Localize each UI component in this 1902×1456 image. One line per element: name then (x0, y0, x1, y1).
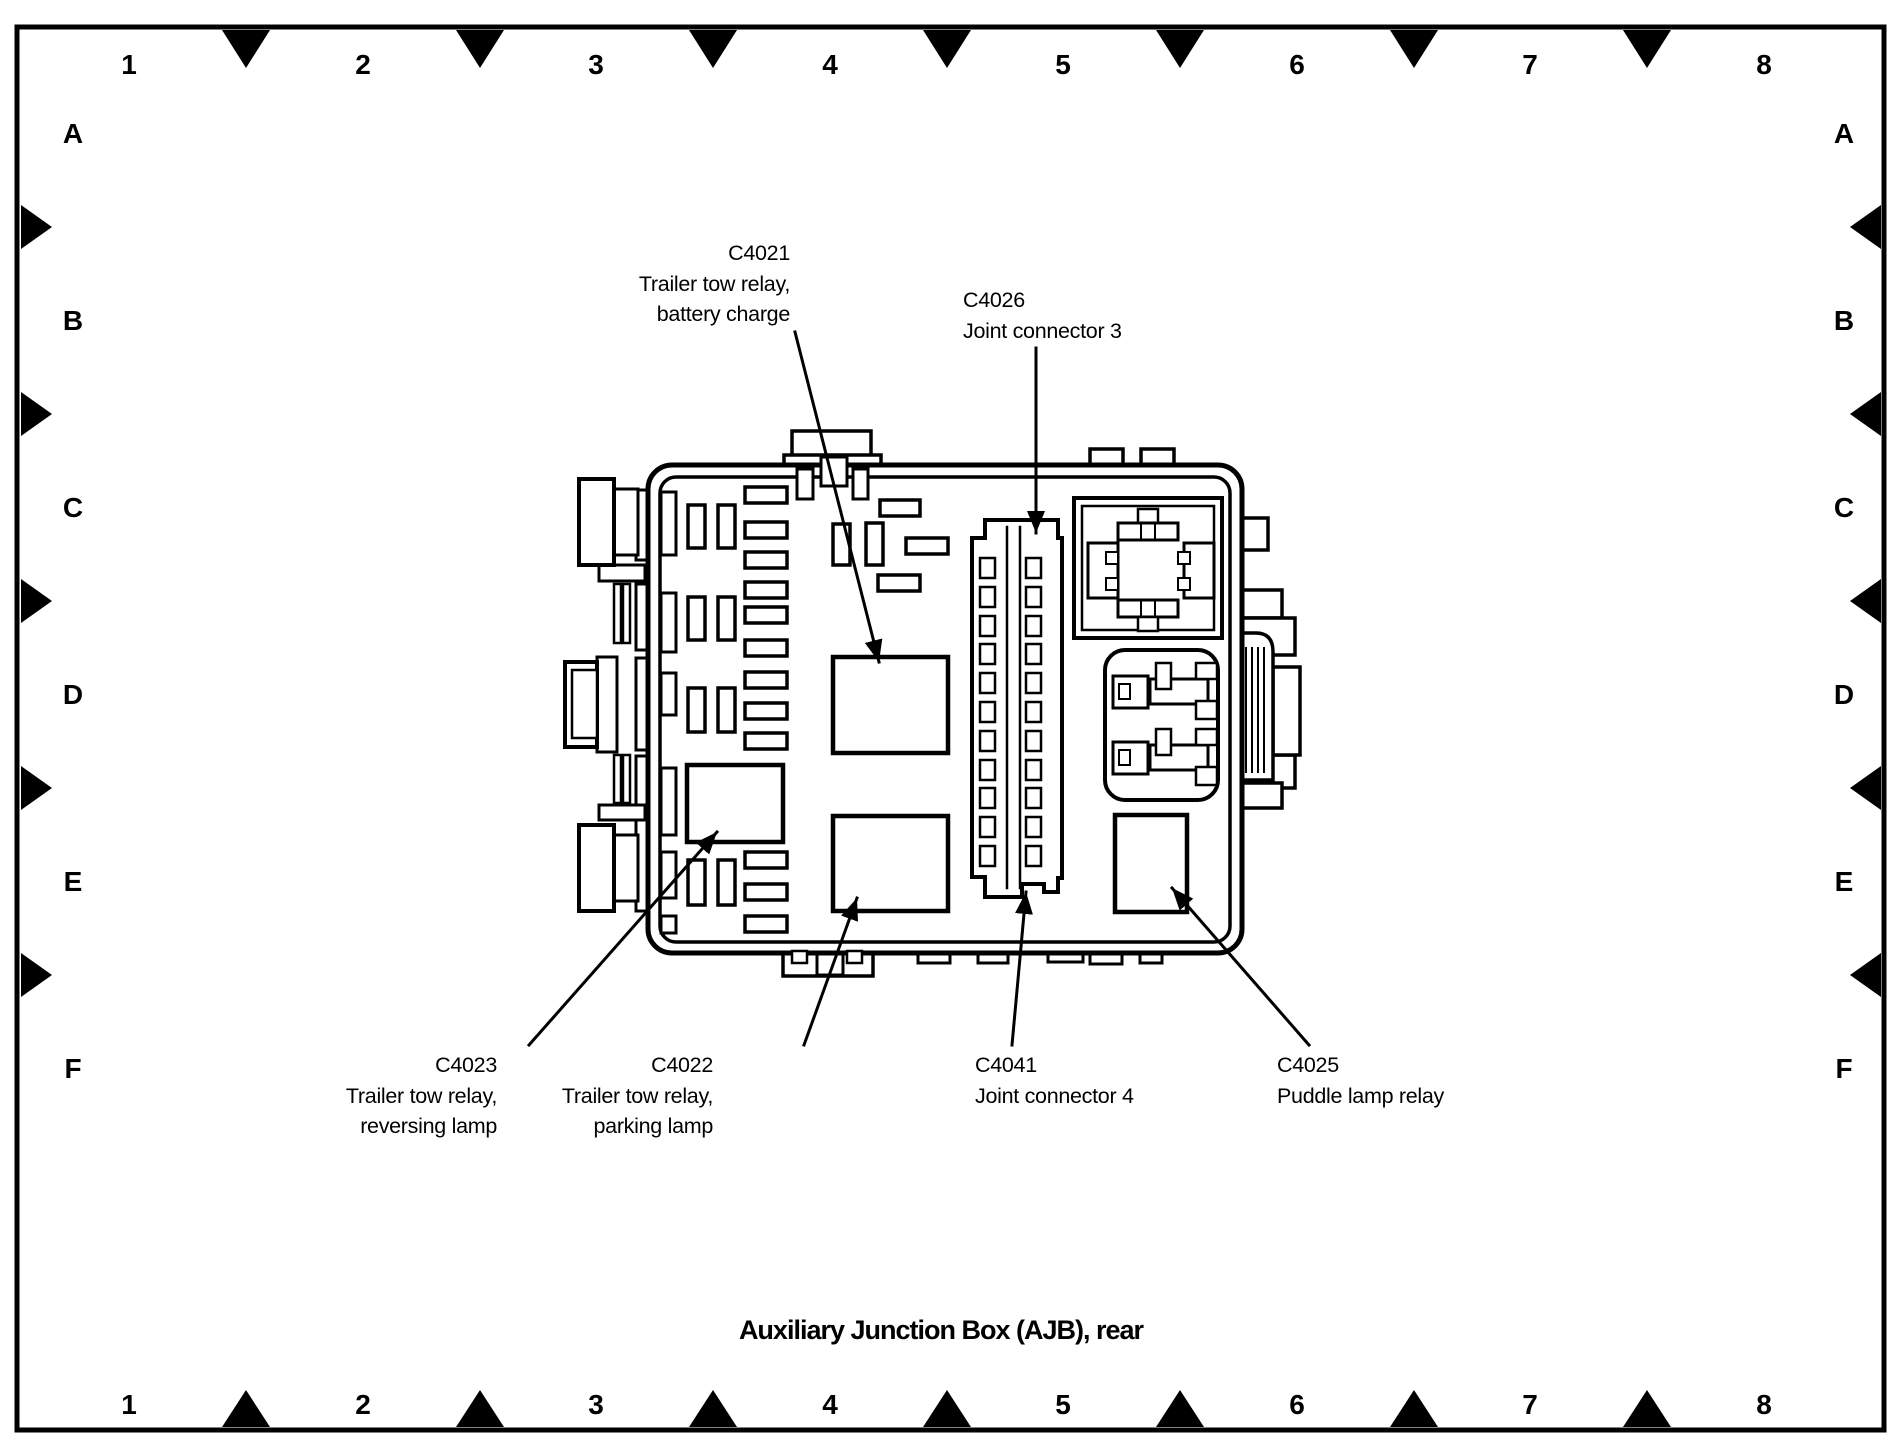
grid-col-label: 3 (566, 48, 626, 82)
grid-row-label: C (43, 491, 103, 525)
connector-id: C4041 (975, 1050, 1134, 1081)
top-triangle (1390, 30, 1438, 68)
connector-desc: Puddle lamp relay (1277, 1081, 1444, 1112)
top-triangle (456, 30, 504, 68)
grid-row-label: D (43, 678, 103, 712)
grid-row-label: B (1814, 304, 1874, 338)
grid-col-label: 8 (1734, 48, 1794, 82)
connector-desc: Joint connector 3 (963, 316, 1122, 347)
left-side-connectors (565, 479, 650, 911)
grid-row-label: B (43, 304, 103, 338)
horizontal-fuse-bank (745, 487, 787, 932)
connector-desc: Trailer tow relay, (639, 269, 790, 300)
grid-row-label: E (1814, 865, 1874, 899)
callout-c4025: C4025 Puddle lamp relay (1277, 1050, 1444, 1111)
grid-col-label: 8 (1734, 1388, 1794, 1422)
connector-desc: Trailer tow relay, (562, 1081, 713, 1112)
c4021-trailer-tow-relay-battery-charge (833, 657, 948, 753)
grid-col-label: 6 (1267, 1388, 1327, 1422)
left-triangle (21, 579, 52, 623)
manual-page: 1 2 3 4 5 6 7 8 1 2 3 4 5 6 7 8 A B C D … (0, 0, 1902, 1456)
left-triangle (21, 205, 52, 249)
bottom-triangle (456, 1390, 504, 1427)
connector-id: C4025 (1277, 1050, 1444, 1081)
right-triangle (1850, 953, 1881, 997)
left-triangle (21, 392, 52, 436)
grid-col-label: 4 (800, 1388, 860, 1422)
right-side-connectors (1238, 518, 1300, 808)
right-triangle (1850, 579, 1881, 623)
grid-col-label: 7 (1500, 1388, 1560, 1422)
grid-col-label: 1 (99, 48, 159, 82)
relay-module-upper (1074, 498, 1222, 638)
callout-c4021: C4021 Trailer tow relay, battery charge (639, 238, 790, 330)
connector-id: C4026 (963, 285, 1122, 316)
top-triangle (689, 30, 737, 68)
grid-row-label: F (43, 1052, 103, 1086)
wiring-diagram (0, 0, 1902, 1456)
callout-c4026: C4026 Joint connector 3 (963, 285, 1122, 346)
top-triangle (222, 30, 270, 68)
c4022-trailer-tow-relay-parking-lamp (833, 816, 948, 911)
grid-row-label: C (1814, 491, 1874, 525)
grid-row-label: A (43, 117, 103, 151)
c4023-trailer-tow-relay-reversing-lamp (687, 765, 783, 842)
top-triangle (1623, 30, 1671, 68)
grid-row-label: A (1814, 117, 1874, 151)
connector-desc: Joint connector 4 (975, 1081, 1134, 1112)
c4025-puddle-lamp-relay (1115, 815, 1187, 912)
connector-id: C4021 (639, 238, 790, 269)
right-triangle (1850, 392, 1881, 436)
grid-col-label: 5 (1033, 48, 1093, 82)
grid-col-label: 7 (1500, 48, 1560, 82)
callout-c4023: C4023 Trailer tow relay, reversing lamp (346, 1050, 497, 1142)
connector-desc: reversing lamp (346, 1111, 497, 1142)
grid-col-label: 2 (333, 48, 393, 82)
top-triangle (923, 30, 971, 68)
grid-row-label: F (1814, 1052, 1874, 1086)
connector-id: C4023 (346, 1050, 497, 1081)
grid-col-label: 2 (333, 1388, 393, 1422)
bottom-triangle (222, 1390, 270, 1427)
connector-desc: parking lamp (562, 1111, 713, 1142)
callout-c4041: C4041 Joint connector 4 (975, 1050, 1134, 1111)
grid-col-label: 4 (800, 48, 860, 82)
grid-row-label: E (43, 865, 103, 899)
right-triangle (1850, 205, 1881, 249)
joint-connector-3-4 (972, 520, 1062, 897)
grid-col-label: 5 (1033, 1388, 1093, 1422)
left-triangle (21, 766, 52, 810)
top-triangle (1156, 30, 1204, 68)
connector-id: C4022 (562, 1050, 713, 1081)
bottom-triangle (689, 1390, 737, 1427)
grid-col-label: 1 (99, 1388, 159, 1422)
figure-title: Auxiliary Junction Box (AJB), rear (0, 1315, 1882, 1346)
right-triangle (1850, 766, 1881, 810)
connector-desc: Trailer tow relay, (346, 1081, 497, 1112)
grid-col-label: 3 (566, 1388, 626, 1422)
bottom-triangle (923, 1390, 971, 1427)
bottom-triangle (1390, 1390, 1438, 1427)
junction-box (565, 431, 1300, 976)
callout-c4022: C4022 Trailer tow relay, parking lamp (562, 1050, 713, 1142)
grid-col-label: 6 (1267, 48, 1327, 82)
bottom-triangle (1156, 1390, 1204, 1427)
grid-row-label: D (1814, 678, 1874, 712)
connector-desc: battery charge (639, 299, 790, 330)
bottom-triangle (1623, 1390, 1671, 1427)
left-triangle (21, 953, 52, 997)
relay-module-lower (1105, 650, 1218, 800)
